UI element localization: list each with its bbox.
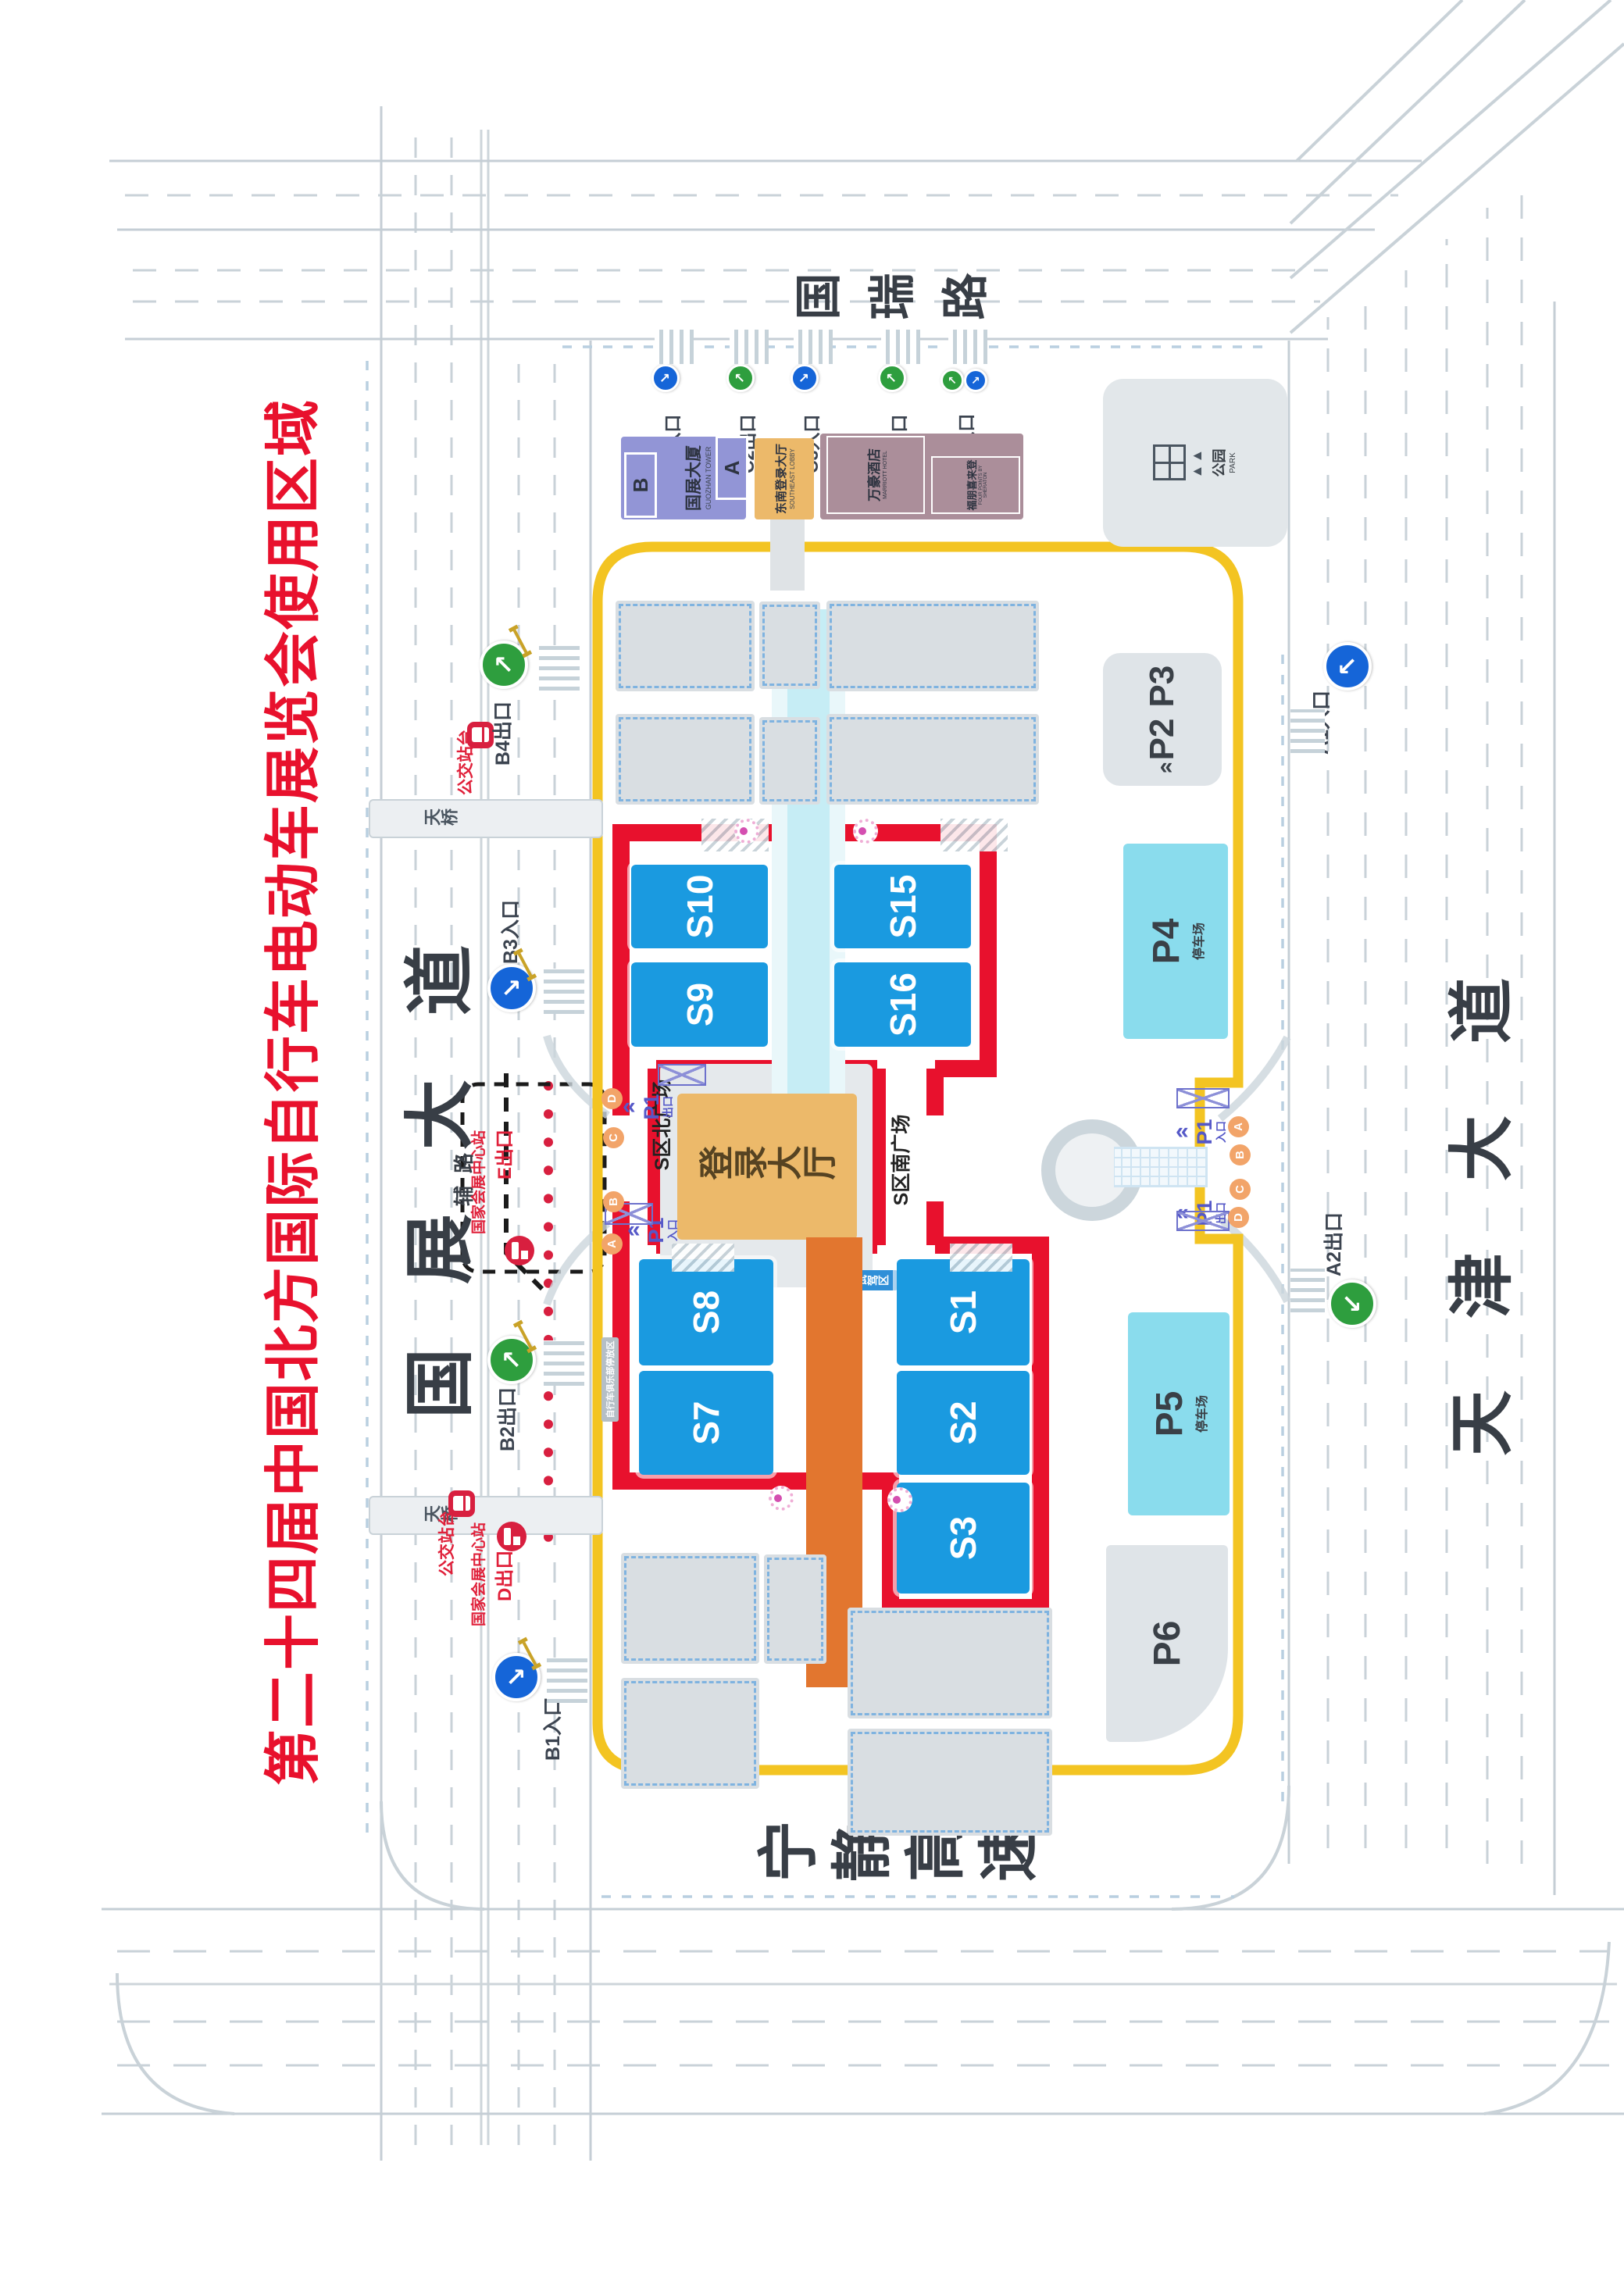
gray-hall-sw-2 bbox=[621, 1678, 759, 1789]
site-map-rotated-canvas: 第二十四届中国北方国际自行车电动车展览会使用区域 国展大道 辅路 国瑞路 天津大… bbox=[0, 0, 1624, 2270]
metro-exit-d-label: D出口 bbox=[489, 1551, 516, 1601]
guozhan-tower-label-en: GUOZHAN TOWER bbox=[705, 447, 712, 510]
crosswalk-c4 bbox=[881, 330, 920, 364]
gray-hall-ne-strip-1 bbox=[759, 601, 820, 689]
marriott-hotel-label-en: MARRIOTT HOTEL bbox=[883, 451, 888, 499]
gate-letter-b-south: B bbox=[1230, 1144, 1251, 1165]
metro-station-label-d: 国家会展中心站 bbox=[467, 1522, 488, 1626]
tower-block-b: B bbox=[624, 452, 657, 518]
hall-s2-label: S2 bbox=[942, 1401, 984, 1444]
south-plaza-label: S区南广场 bbox=[886, 1094, 914, 1226]
fountain-icon-2 bbox=[853, 819, 878, 844]
gate-letter-d-north: D bbox=[601, 1088, 623, 1109]
hatch-strip-sw-2 bbox=[950, 1244, 1012, 1272]
gray-hall-sw-1 bbox=[621, 1553, 759, 1664]
parking-p4: P4 停车场 bbox=[1123, 844, 1228, 1039]
hatch-strip-sw-1 bbox=[672, 1244, 734, 1272]
gate-letter-c-south: C bbox=[1230, 1179, 1251, 1200]
hall-s2: S2 bbox=[897, 1371, 1030, 1475]
metro-exit-e-label: E出口 bbox=[489, 1130, 516, 1180]
gate-letter-d-south: D bbox=[1228, 1207, 1249, 1228]
southeast-lobby-label-en: SOUTHEAST LOBBY bbox=[789, 448, 796, 509]
gate-c5-exit-icon: ↗ bbox=[940, 369, 964, 392]
parking-p4-label: P4 bbox=[1145, 919, 1188, 965]
hall-s8: S8 bbox=[639, 1259, 773, 1365]
gate-c4-exit-icon: ↗ bbox=[878, 364, 906, 392]
bus-icon-west bbox=[448, 1490, 475, 1517]
gate-letter-a-south: A bbox=[1228, 1116, 1249, 1137]
hall-s9-label: S9 bbox=[679, 983, 721, 1026]
map-title: 第二十四届中国北方国际自行车电动车展览会使用区域 bbox=[247, 380, 329, 1786]
gray-hall-ne-1 bbox=[616, 601, 755, 691]
southeast-lobby-label: 东南登录大厅 bbox=[773, 444, 789, 514]
toll-barrier-south-1 bbox=[1176, 1088, 1230, 1108]
p2-chevron-icon: « bbox=[1160, 754, 1173, 780]
hall-s16: S16 bbox=[834, 962, 971, 1047]
crosswalk-c5 bbox=[948, 330, 987, 364]
p1-sign-sub: 入口 bbox=[1215, 1103, 1226, 1161]
parking-p6-label: P6 bbox=[1146, 1621, 1189, 1667]
gray-hall-ne-2 bbox=[616, 714, 755, 805]
p1-exit-sign-north: « P1 出口 bbox=[617, 1078, 673, 1136]
crosswalk-a1 bbox=[1290, 709, 1325, 753]
crosswalk-c1 bbox=[655, 330, 694, 364]
southeast-interchange bbox=[1290, 0, 1624, 333]
east-road-name: 国瑞路 bbox=[794, 266, 1014, 334]
bus-stop-label-west: 公交站台 bbox=[434, 1511, 458, 1576]
crosswalk-b1 bbox=[547, 1658, 587, 1703]
pedestrian-bridge-east-label: 天桥 bbox=[423, 806, 458, 831]
parking-p5-label: P5 bbox=[1148, 1391, 1191, 1437]
hall-s10-label: S10 bbox=[679, 875, 721, 939]
gate-c5-entrance-icon: ↘ bbox=[964, 369, 987, 392]
parking-p5: P5 停车场 bbox=[1128, 1312, 1230, 1515]
gate-a1-entrance-icon: ↖ bbox=[1323, 642, 1372, 691]
poster-page: 第二十四届中国北方国际自行车电动车展览会使用区域 国展大道 辅路 国瑞路 天津大… bbox=[0, 0, 1624, 2270]
gate-a2-label: A2出口 bbox=[1319, 1212, 1347, 1276]
gate-c2-exit-icon: ↗ bbox=[726, 364, 755, 392]
metro-logo-d bbox=[497, 1522, 526, 1551]
se-lobby-connector bbox=[770, 519, 805, 591]
metro-logo-e bbox=[505, 1236, 534, 1265]
parking-p2-label: «P2 bbox=[1143, 719, 1182, 774]
tower-block-a-label: A bbox=[720, 461, 744, 476]
fountain-icon-3 bbox=[769, 1486, 794, 1511]
toll-barrier-south-2 bbox=[1176, 1211, 1230, 1231]
gate-letter-b-north: B bbox=[603, 1191, 624, 1212]
gray-hall-sw-3 bbox=[848, 1608, 1052, 1719]
south-road-name: 天津大道 bbox=[1429, 906, 1524, 1456]
gate-b4-label: B4出口 bbox=[487, 701, 516, 766]
parking-p3-label: P3 bbox=[1143, 666, 1182, 708]
west-road-edges bbox=[102, 1909, 1624, 2114]
crosswalk-b4 bbox=[539, 645, 580, 691]
bike-club-parking-label: 自行车俱乐部停放区 bbox=[604, 1341, 616, 1419]
park-block: ▲▲ 公园 PARK bbox=[1103, 379, 1287, 547]
guozhan-tower-label: 国展大厦 bbox=[681, 445, 705, 511]
fourpoints-hotel-label-en: FOUR POINTS BY SHERATON bbox=[979, 458, 988, 512]
parking-p4-sub: 停车场 bbox=[1188, 923, 1207, 960]
fountain-icon-4 bbox=[887, 1487, 912, 1512]
hatch-strip-ne-2 bbox=[940, 819, 1008, 851]
park-icon bbox=[1153, 445, 1186, 481]
registration-hall: 登录大厅 bbox=[677, 1094, 857, 1240]
marriott-hotel-label: 万豪酒店 bbox=[863, 448, 883, 501]
gray-hall-sw-strip-1 bbox=[764, 1554, 826, 1664]
west-road-lanes bbox=[117, 1951, 1609, 2065]
toll-barrier-north-1 bbox=[658, 1064, 706, 1086]
hall-s7-label: S7 bbox=[685, 1401, 727, 1444]
tower-block-a: A bbox=[716, 436, 748, 500]
gate-b1-label: B1入口 bbox=[537, 1697, 566, 1761]
p1-chevron-icon: « bbox=[1153, 1120, 1211, 1144]
hall-s16-label: S16 bbox=[882, 973, 924, 1037]
gray-hall-ne-4 bbox=[826, 714, 1039, 805]
hall-s1: S1 bbox=[897, 1259, 1030, 1365]
crosswalk-b2 bbox=[544, 1340, 584, 1386]
fountain-icon-1 bbox=[734, 819, 759, 844]
p1-sign-sub: 入口 bbox=[667, 1201, 678, 1259]
gate-a2-exit-icon: ↙ bbox=[1328, 1280, 1376, 1328]
park-label: 公园 bbox=[1208, 449, 1229, 477]
p1-sign-sub: 出口 bbox=[662, 1078, 673, 1136]
hall-s15-label: S15 bbox=[882, 875, 924, 939]
pedestrian-bridge-east: 天桥 bbox=[369, 799, 603, 838]
registration-hall-label: 登录大厅 bbox=[698, 1142, 836, 1192]
hall-s9: S9 bbox=[631, 962, 768, 1047]
hall-s1-label: S1 bbox=[942, 1290, 984, 1334]
gate-letter-a-north: A bbox=[601, 1233, 623, 1255]
gray-hall-sw-4 bbox=[848, 1729, 1052, 1836]
marriott-hotel: 万豪酒店 MARRIOTT HOTEL bbox=[826, 436, 925, 514]
parking-p2-p3: «P2 P3 bbox=[1103, 653, 1222, 786]
hall-s3-label: S3 bbox=[942, 1516, 984, 1560]
metro-station-label-e: 国家会展中心站 bbox=[467, 1130, 488, 1234]
gray-hall-ne-3 bbox=[826, 601, 1039, 691]
tower-block-b-label: B bbox=[629, 478, 653, 493]
gate-c1-entrance-icon: ↘ bbox=[651, 364, 680, 392]
gate-letter-c-north: C bbox=[603, 1127, 624, 1148]
parking-p5-sub: 停车场 bbox=[1191, 1395, 1210, 1433]
southeast-lobby: 东南登录大厅 SOUTHEAST LOBBY bbox=[755, 438, 814, 519]
park-label-en: PARK bbox=[1229, 452, 1237, 473]
hall-s10: S10 bbox=[631, 865, 768, 948]
p1-entrance-sign-south: « P1 入口 bbox=[1170, 1103, 1226, 1161]
gate-c3-entrance-icon: ↘ bbox=[791, 364, 819, 392]
fourpoints-hotel-label: 福朋喜来登 bbox=[964, 460, 979, 511]
crosswalk-c2 bbox=[730, 330, 769, 364]
bike-club-parking-strip: 自行车俱乐部停放区 bbox=[601, 1337, 619, 1422]
gray-hall-ne-strip-2 bbox=[759, 717, 820, 805]
park-trees-icon: ▲▲ bbox=[1189, 448, 1205, 479]
crosswalk-c3 bbox=[794, 330, 833, 364]
gate-b2-label: B2出口 bbox=[492, 1387, 520, 1451]
crosswalk-b3 bbox=[544, 969, 584, 1014]
hall-s7: S7 bbox=[639, 1371, 773, 1475]
east-road-edges bbox=[109, 161, 1422, 339]
crosswalk-a2 bbox=[1290, 1269, 1325, 1312]
fourpoints-hotel: 福朋喜来登 FOUR POINTS BY SHERATON bbox=[931, 456, 1020, 514]
hall-s3: S3 bbox=[897, 1483, 1030, 1594]
east-road-lanes bbox=[125, 195, 1398, 302]
hall-s8-label: S8 bbox=[685, 1290, 727, 1334]
hall-s15: S15 bbox=[834, 865, 971, 948]
